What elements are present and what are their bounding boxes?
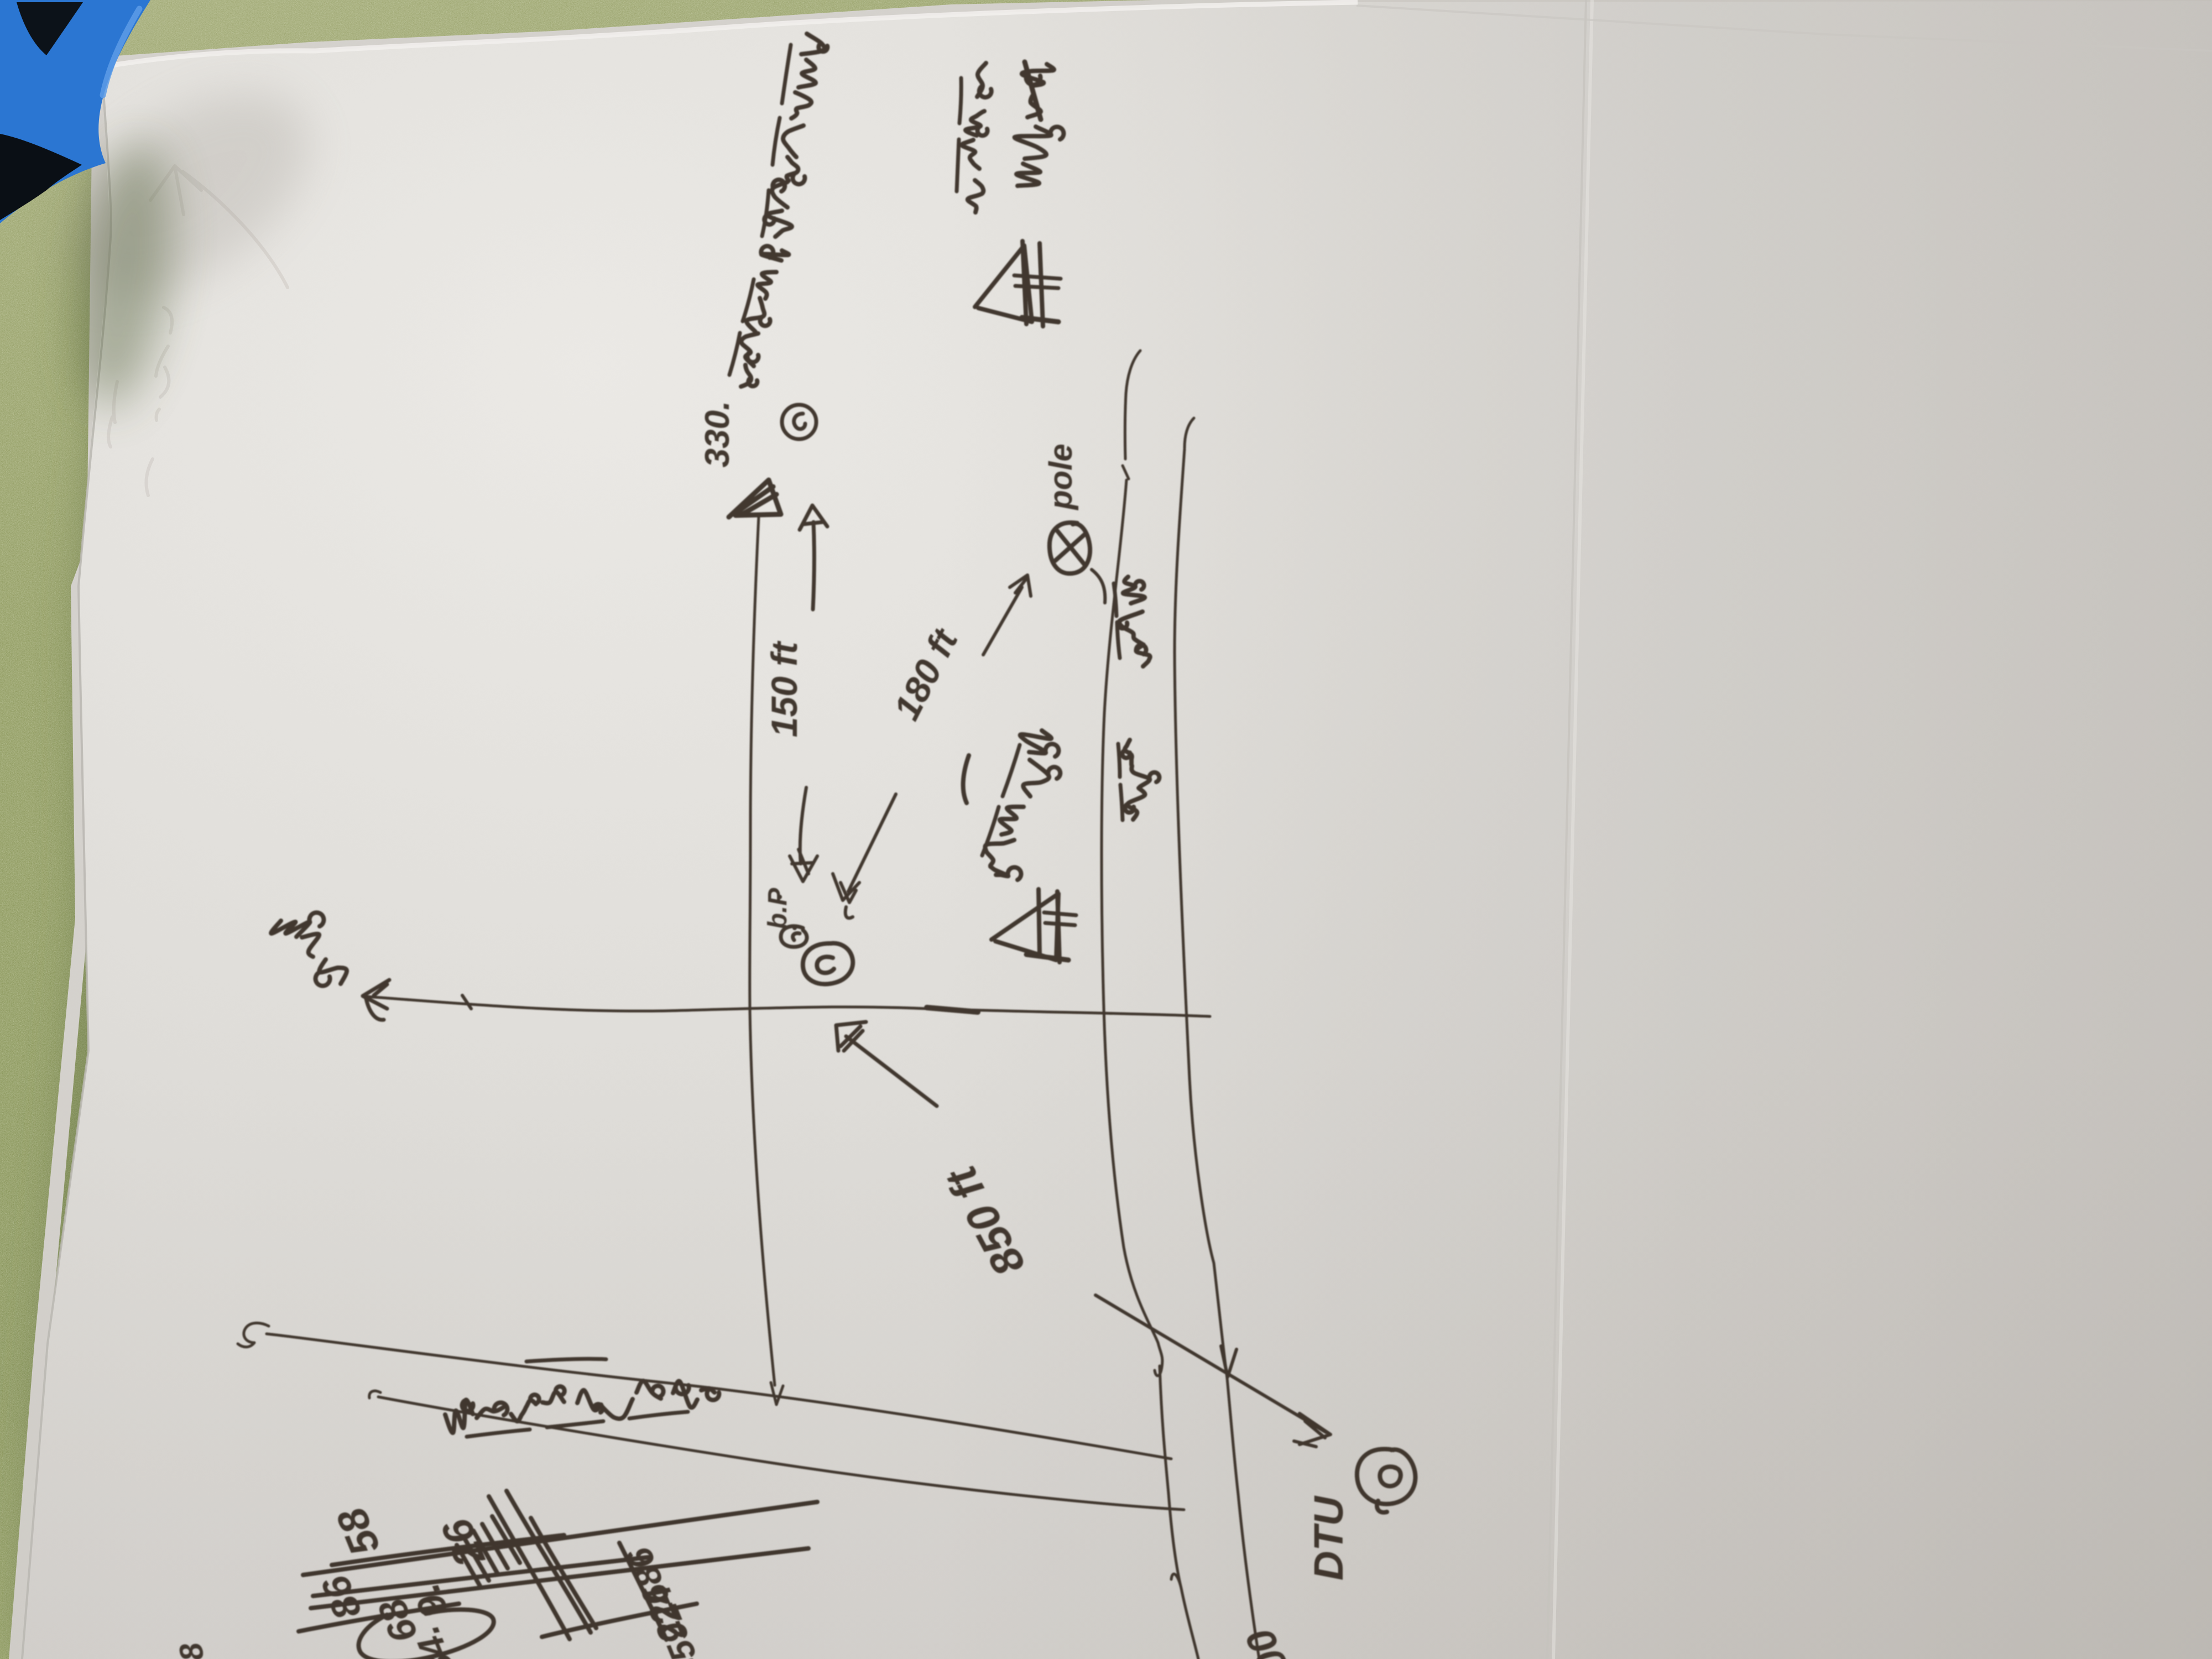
svg-text:b.P: b.P [763, 888, 792, 930]
svg-text:150 ft: 150 ft [764, 640, 805, 737]
svg-text:pole: pole [1043, 444, 1079, 510]
svg-text:330.: 330. [698, 401, 737, 468]
svg-text:DTU: DTU [1306, 1495, 1352, 1580]
